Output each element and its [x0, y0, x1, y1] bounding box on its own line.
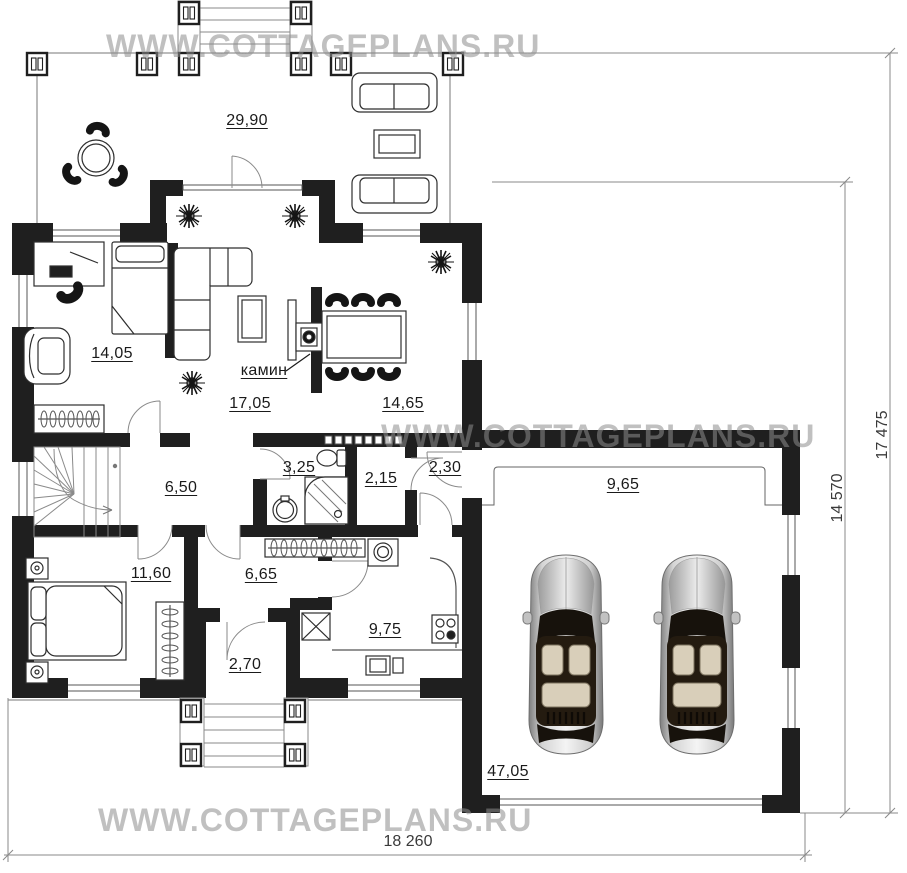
watermark-top: WWW.COTTAGEPLANS.RU	[106, 28, 540, 65]
area-label-hallway: 6,65	[245, 566, 277, 584]
dimension-width: 18 260	[384, 833, 433, 851]
dimension-height-inner: 14 570	[829, 474, 847, 523]
area-label-bedroom: 11,60	[131, 565, 171, 583]
bath-sink	[273, 496, 297, 522]
terrace-sofa-2	[352, 175, 437, 213]
office-desk	[34, 242, 104, 286]
vent-shaft	[302, 613, 330, 640]
bedroom-nightstand	[26, 558, 48, 579]
car-1	[523, 555, 609, 754]
car-2	[654, 555, 740, 754]
watermark-middle: WWW.COTTAGEPLANS.RU	[381, 418, 815, 455]
area-label-terrace: 29,90	[226, 112, 268, 130]
dining-table	[322, 311, 406, 363]
office-armchair	[24, 328, 70, 384]
area-label-garage: 47,05	[487, 763, 529, 781]
area-label-storage: 2,15	[365, 470, 397, 488]
area-label-garage-bay: 9,65	[607, 476, 639, 494]
kitchen-stove	[432, 615, 458, 643]
bedroom-bed	[28, 582, 126, 660]
terrace-table	[63, 125, 126, 186]
bedroom-nightstand	[26, 662, 48, 683]
area-label-mudroom: 2,30	[429, 459, 461, 477]
garage-details	[482, 467, 782, 805]
watermark-bottom: WWW.COTTAGEPLANS.RU	[98, 802, 532, 839]
area-label-bathroom: 3,25	[283, 459, 315, 477]
dimension-height-outer: 17 475	[874, 411, 892, 460]
hallway-wardrobe	[265, 539, 365, 557]
annotation-fireplace: камин	[241, 362, 288, 380]
area-label-office: 14,05	[91, 345, 133, 363]
office-bed	[112, 242, 168, 334]
area-label-living-room: 17,05	[229, 395, 271, 413]
terrace-sofa-1	[352, 73, 437, 112]
floor-plan-page: WWW.COTTAGEPLANS.RU WWW.COTTAGEPLANS.RU …	[0, 0, 907, 873]
toilet	[317, 450, 346, 466]
office-wardrobe	[34, 405, 104, 433]
area-label-kitchen: 9,75	[369, 621, 401, 639]
staircase	[34, 447, 120, 537]
washing-machine	[368, 539, 398, 566]
bedroom-wardrobe	[156, 602, 184, 680]
shower	[305, 477, 348, 524]
area-label-dining-room: 14,65	[382, 395, 424, 413]
area-label-stair-hall: 6,50	[165, 479, 197, 497]
area-label-porch: 2,70	[229, 656, 261, 674]
kitchen-sink	[366, 656, 403, 675]
